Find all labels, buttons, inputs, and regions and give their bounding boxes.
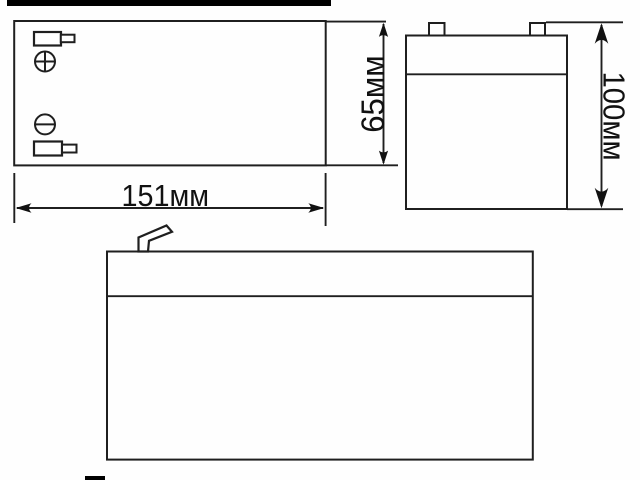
svg-text:65мм: 65мм [355,55,391,133]
svg-text:100мм: 100мм [597,72,632,161]
svg-text:151мм: 151мм [122,178,210,213]
